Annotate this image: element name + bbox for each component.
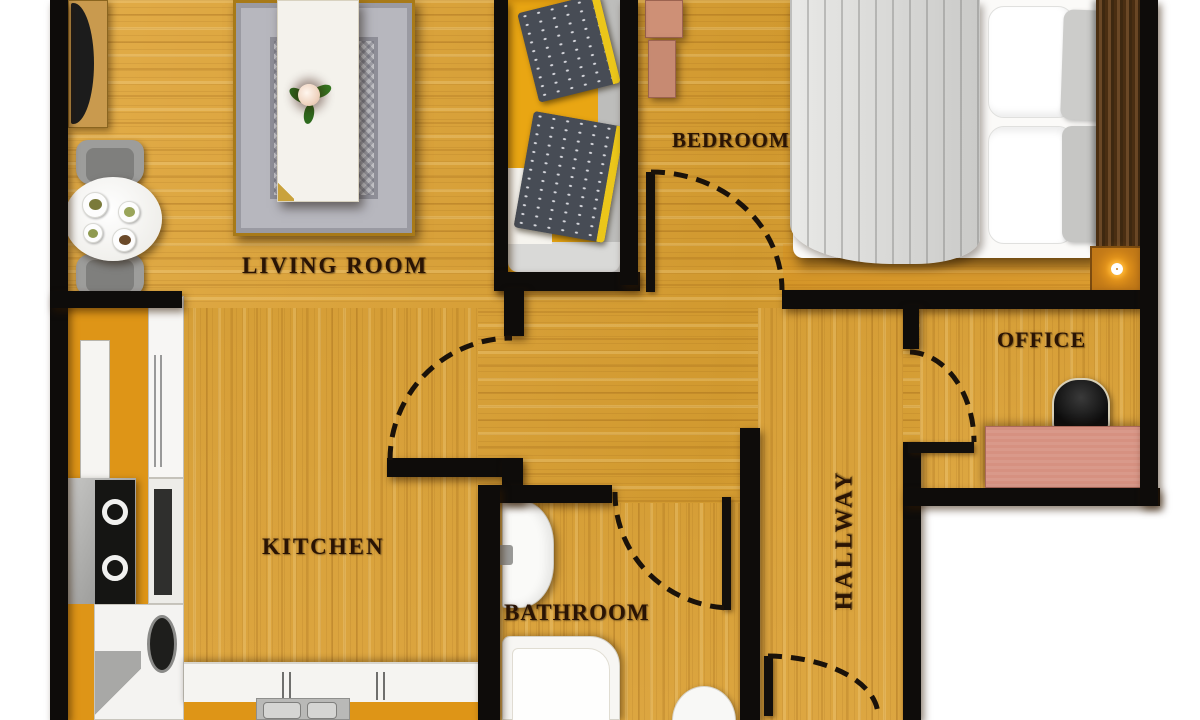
floor-plan: LIVING ROOM BEDROOM OFFICE HALLWAY BATHR… (0, 0, 1200, 720)
entry-door-arc (768, 656, 878, 716)
door-arcs (0, 0, 1200, 720)
kitchen-door-arc (390, 338, 512, 460)
office-door-arc (910, 352, 974, 442)
bedroom-door-arc (651, 172, 782, 290)
bathroom-door-arc (615, 492, 728, 608)
